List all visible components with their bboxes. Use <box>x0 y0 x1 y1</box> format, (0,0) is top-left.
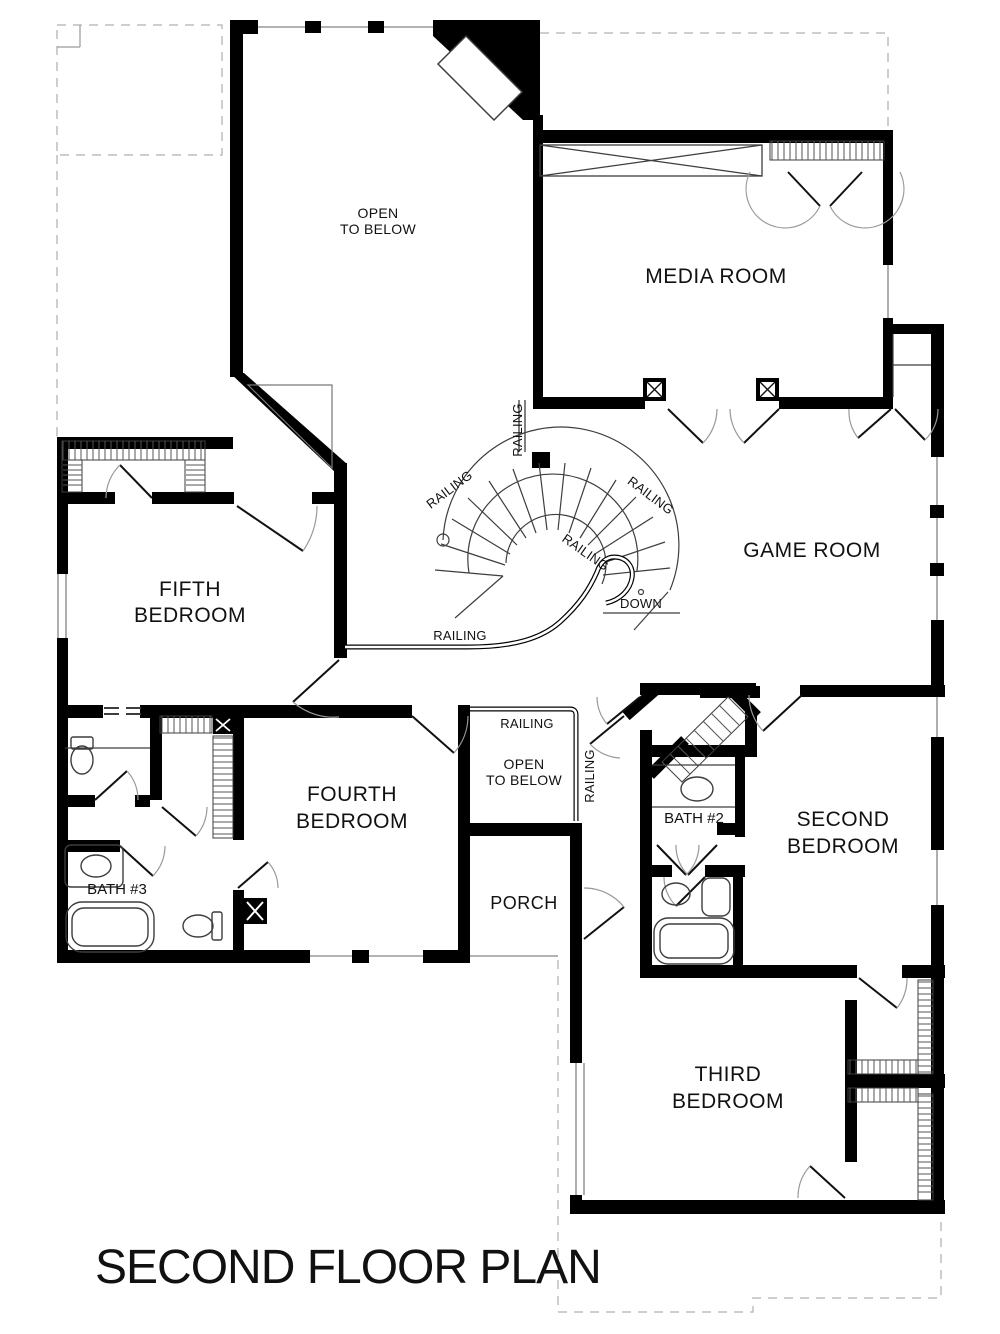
roof-notch-lines <box>57 25 80 47</box>
fourth-bedroom-label-line1: FOURTH <box>307 783 397 806</box>
roof-dashed-lines <box>57 25 941 1312</box>
third-bedroom-label-line2: BEDROOM <box>672 1090 784 1113</box>
railing-label-hall: RAILING <box>433 628 486 643</box>
railing-label-stair-right: RAILING <box>625 473 677 517</box>
porch-label: PORCH <box>490 893 558 913</box>
post-xbox <box>213 716 233 734</box>
fifth-bedroom-label-line2: BEDROOM <box>134 604 246 627</box>
post-xbox <box>243 898 267 924</box>
toilet-bath2 <box>681 777 713 801</box>
railing-label-stair-top: RAILING <box>510 403 525 456</box>
bathtub-lower <box>654 918 734 964</box>
toilet-wc1 <box>71 737 93 774</box>
post-xbox <box>756 378 779 401</box>
labels: OPEN TO BELOW MEDIA ROOM GAME ROOM FIFTH… <box>87 205 899 1294</box>
open-below-small-label-line2: TO BELOW <box>486 772 563 788</box>
down-label: DOWN <box>620 596 662 611</box>
bathtub-bath3 <box>66 902 154 952</box>
floor-plan-drawing: OPEN TO BELOW MEDIA ROOM GAME ROOM FIFTH… <box>0 0 1000 1334</box>
fixtures <box>65 737 734 964</box>
game-room-label: GAME ROOM <box>743 539 881 562</box>
railing-label-stair-left: RAILING <box>423 467 475 511</box>
open-to-below-label-line1: OPEN <box>358 205 399 221</box>
bath2-label: BATH #2 <box>664 810 724 827</box>
media-room-label: MEDIA ROOM <box>645 265 787 288</box>
open-to-below-label-line2: TO BELOW <box>340 221 417 237</box>
fifth-bedroom-label-line1: FIFTH <box>159 578 221 601</box>
bath3-label: BATH #3 <box>87 881 147 898</box>
third-bedroom-label-line1: THIRD <box>695 1063 762 1086</box>
floor-plan: OPEN TO BELOW MEDIA ROOM GAME ROOM FIFTH… <box>0 0 1000 1334</box>
hatch-shelving <box>62 141 933 1200</box>
soffit-xbox <box>540 145 762 176</box>
plan-title: SECOND FLOOR PLAN <box>95 1241 601 1294</box>
structural-posts <box>213 378 779 924</box>
toilet-bath-lower <box>662 878 730 916</box>
fourth-bedroom-label-line2: BEDROOM <box>296 810 408 833</box>
open-below-small-label-line1: OPEN <box>504 756 545 772</box>
post-xbox <box>643 378 666 401</box>
railing-label-openbelow-side: RAILING <box>582 749 597 802</box>
toilet-bath3 <box>183 912 222 940</box>
second-bedroom-label-line2: BEDROOM <box>787 835 899 858</box>
second-bedroom-label-line1: SECOND <box>797 808 890 831</box>
railing-label-openbelow-top: RAILING <box>500 716 553 731</box>
